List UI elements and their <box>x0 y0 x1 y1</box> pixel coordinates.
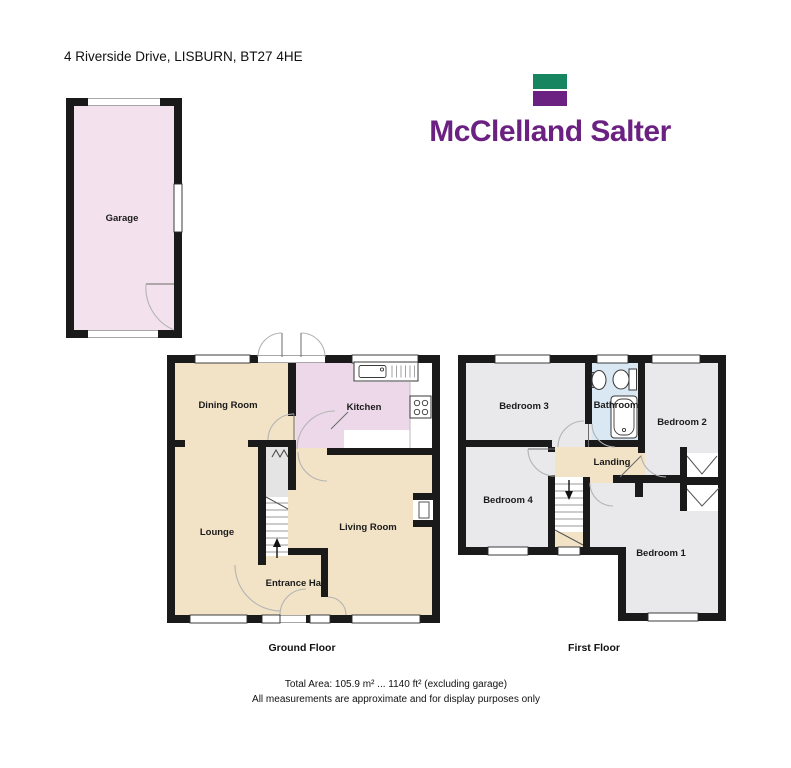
room-label-bathroom: Bathroom <box>594 400 639 411</box>
ground-floor-caption: Ground Floor <box>242 642 362 654</box>
room-label-bed2: Bedroom 2 <box>657 417 707 428</box>
fireplace <box>413 493 433 527</box>
lounge-window <box>190 615 247 623</box>
room-label-hall: Entrance Hall <box>266 578 327 589</box>
floorplan-document: 4 Riverside Drive, LISBURN, BT27 4HE McC… <box>0 0 791 768</box>
stairwell-window <box>558 547 580 555</box>
room-label-bed3: Bedroom 3 <box>499 401 549 412</box>
floor-plan-canvas: Garage <box>0 0 791 768</box>
garage-window <box>174 184 182 232</box>
first-floor-caption: First Floor <box>534 642 654 654</box>
room-label-landing: Landing <box>594 457 631 468</box>
room-label-living: Living Room <box>339 522 397 533</box>
kitchen-hob <box>410 396 431 418</box>
room-label-bed4: Bedroom 4 <box>483 495 533 506</box>
hall-sidelight-left <box>262 615 280 623</box>
hall-sidelight-right <box>310 615 330 623</box>
first-floor-plan: Bedroom 3 Bathroom Bedroom 2 Bedroom 4 L… <box>458 355 726 621</box>
bedroom4-window <box>488 547 528 555</box>
bedroom2-window <box>652 355 700 363</box>
living-window <box>352 615 420 623</box>
bedroom3-window <box>495 355 550 363</box>
garage-plan: Garage <box>66 98 182 338</box>
room-label-kitchen: Kitchen <box>347 402 382 413</box>
ground-floor-plan: Dining Room Kitchen Lounge Living Room E… <box>167 333 440 623</box>
bathroom-basin <box>592 371 606 390</box>
stairs-ground-understair <box>266 447 288 497</box>
bathroom-window <box>597 355 628 363</box>
room-label-garage: Garage <box>106 213 139 224</box>
bathroom-toilet <box>613 369 637 390</box>
room-label-lounge: Lounge <box>200 527 234 538</box>
kitchen-sink <box>354 362 418 381</box>
footer-notes: Total Area: 105.9 m² ... 1140 ft² (exclu… <box>96 678 696 707</box>
room-label-dining: Dining Room <box>198 400 257 411</box>
disclaimer-text: All measurements are approximate and for… <box>96 693 696 708</box>
room-label-bed1: Bedroom 1 <box>636 548 686 559</box>
total-area-text: Total Area: 105.9 m² ... 1140 ft² (exclu… <box>96 678 696 693</box>
bedroom1-window <box>648 613 698 621</box>
dining-window <box>195 355 250 363</box>
